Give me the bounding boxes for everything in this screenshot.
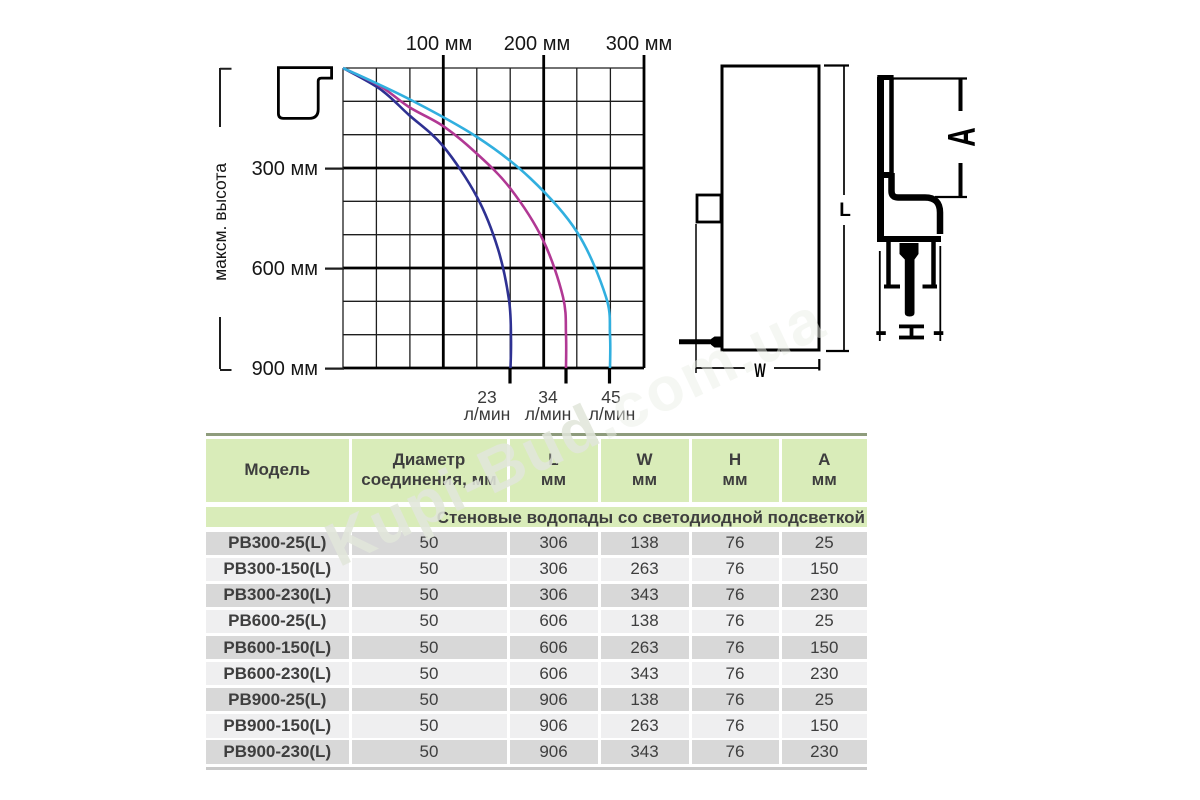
- svg-text:300 мм: 300 мм: [252, 158, 318, 180]
- svg-text:л/мин: л/мин: [464, 404, 511, 424]
- svg-text:200 мм: 200 мм: [504, 33, 570, 55]
- svg-text:A: A: [941, 127, 984, 146]
- svg-text:900 мм: 900 мм: [252, 358, 318, 380]
- svg-text:300 мм: 300 мм: [606, 33, 672, 55]
- svg-text:максм. высота: максм. высота: [210, 163, 230, 281]
- svg-text:100 мм: 100 мм: [406, 33, 472, 55]
- svg-text:L: L: [839, 200, 851, 221]
- svg-text:600 мм: 600 мм: [252, 258, 318, 280]
